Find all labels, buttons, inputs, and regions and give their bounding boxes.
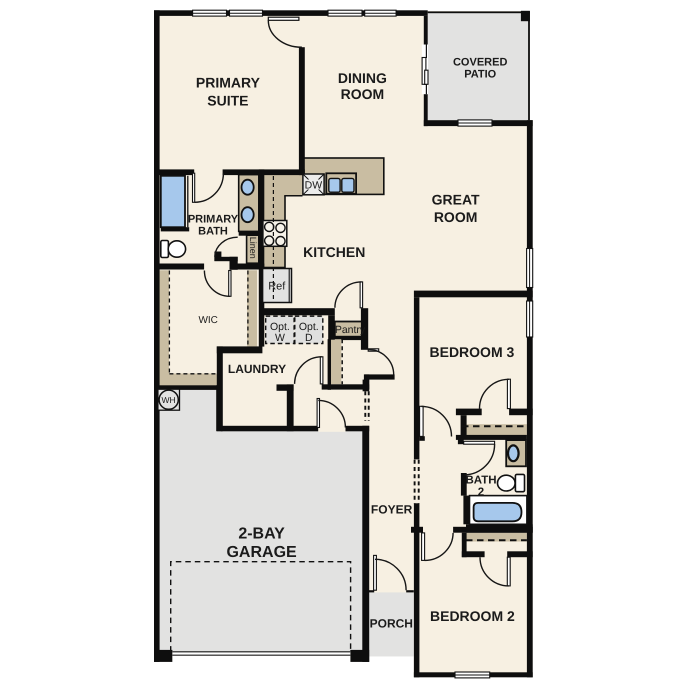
svg-text:WH: WH [162,395,176,405]
svg-text:SUITE: SUITE [207,93,248,109]
svg-text:KITCHEN: KITCHEN [303,244,365,260]
svg-text:LAUNDRY: LAUNDRY [228,362,286,376]
svg-text:WIC: WIC [198,315,217,326]
svg-text:DW: DW [305,179,323,191]
svg-text:BATH: BATH [465,475,496,487]
svg-text:PORCH: PORCH [370,617,413,631]
svg-text:D: D [305,332,313,344]
svg-text:2: 2 [478,486,484,498]
svg-text:Ref: Ref [268,281,286,293]
svg-text:PATIO: PATIO [464,69,496,81]
svg-text:COVERED: COVERED [453,56,507,68]
svg-text:Opt.: Opt. [299,321,319,333]
svg-text:2-BAY: 2-BAY [238,525,285,542]
svg-text:W: W [275,332,285,344]
svg-text:GARAGE: GARAGE [226,544,297,561]
svg-text:BEDROOM 3: BEDROOM 3 [430,344,515,360]
svg-text:PRIMARY: PRIMARY [196,74,261,90]
svg-text:ROOM: ROOM [434,209,478,225]
svg-text:DINING: DINING [338,70,387,86]
svg-text:Opt.: Opt. [270,321,290,333]
svg-text:BATH: BATH [198,226,228,238]
svg-text:BEDROOM 2: BEDROOM 2 [430,608,515,624]
svg-text:ROOM: ROOM [341,86,385,102]
svg-text:Linen: Linen [248,237,258,259]
svg-text:PRIMARY: PRIMARY [188,213,239,225]
svg-text:Pantry: Pantry [335,324,366,336]
svg-text:GREAT: GREAT [432,191,480,207]
svg-text:FOYER: FOYER [371,503,413,517]
